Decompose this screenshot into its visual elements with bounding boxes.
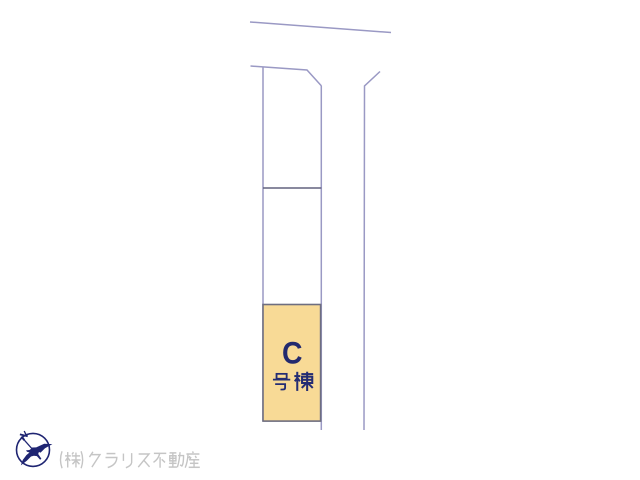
svg-text:C: C: [282, 336, 302, 371]
